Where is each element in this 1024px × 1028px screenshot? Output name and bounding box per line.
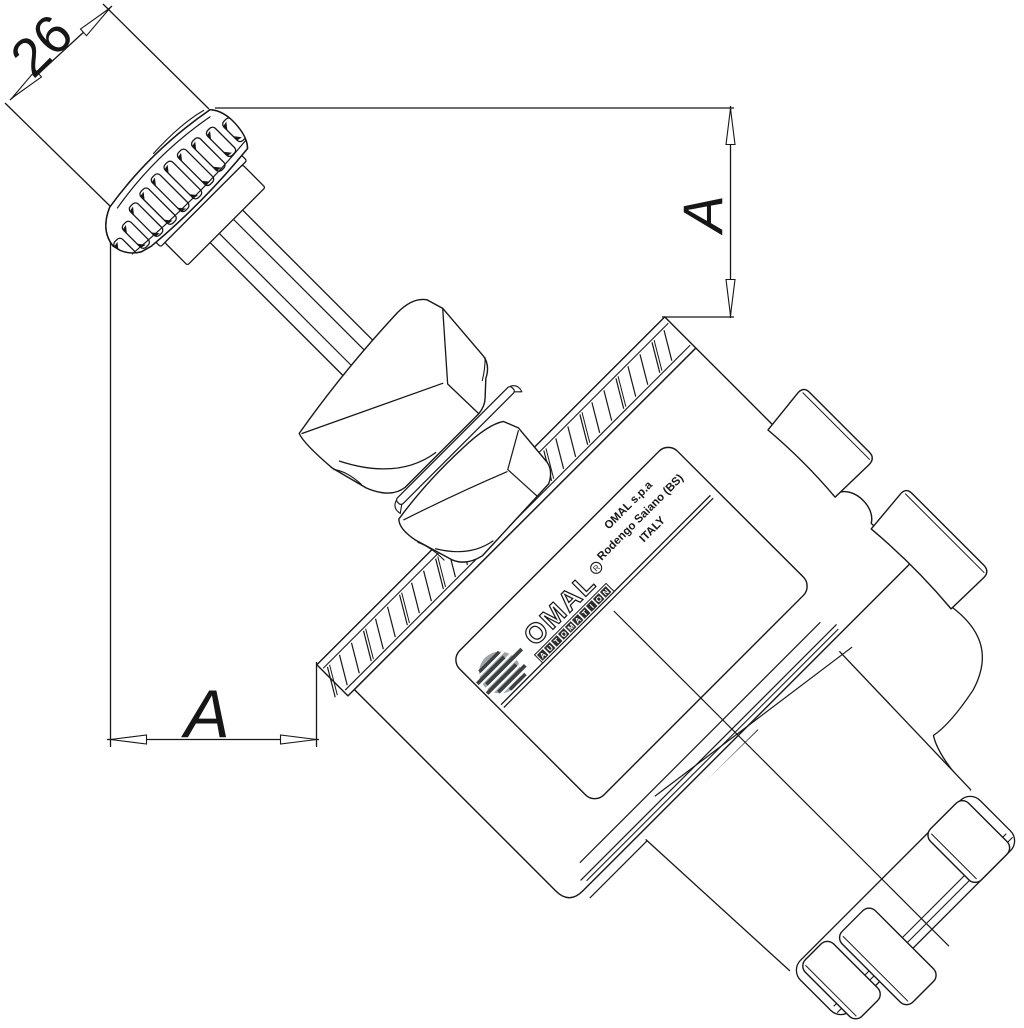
svg-text:A: A xyxy=(671,195,734,235)
svg-text:A: A xyxy=(180,676,229,752)
